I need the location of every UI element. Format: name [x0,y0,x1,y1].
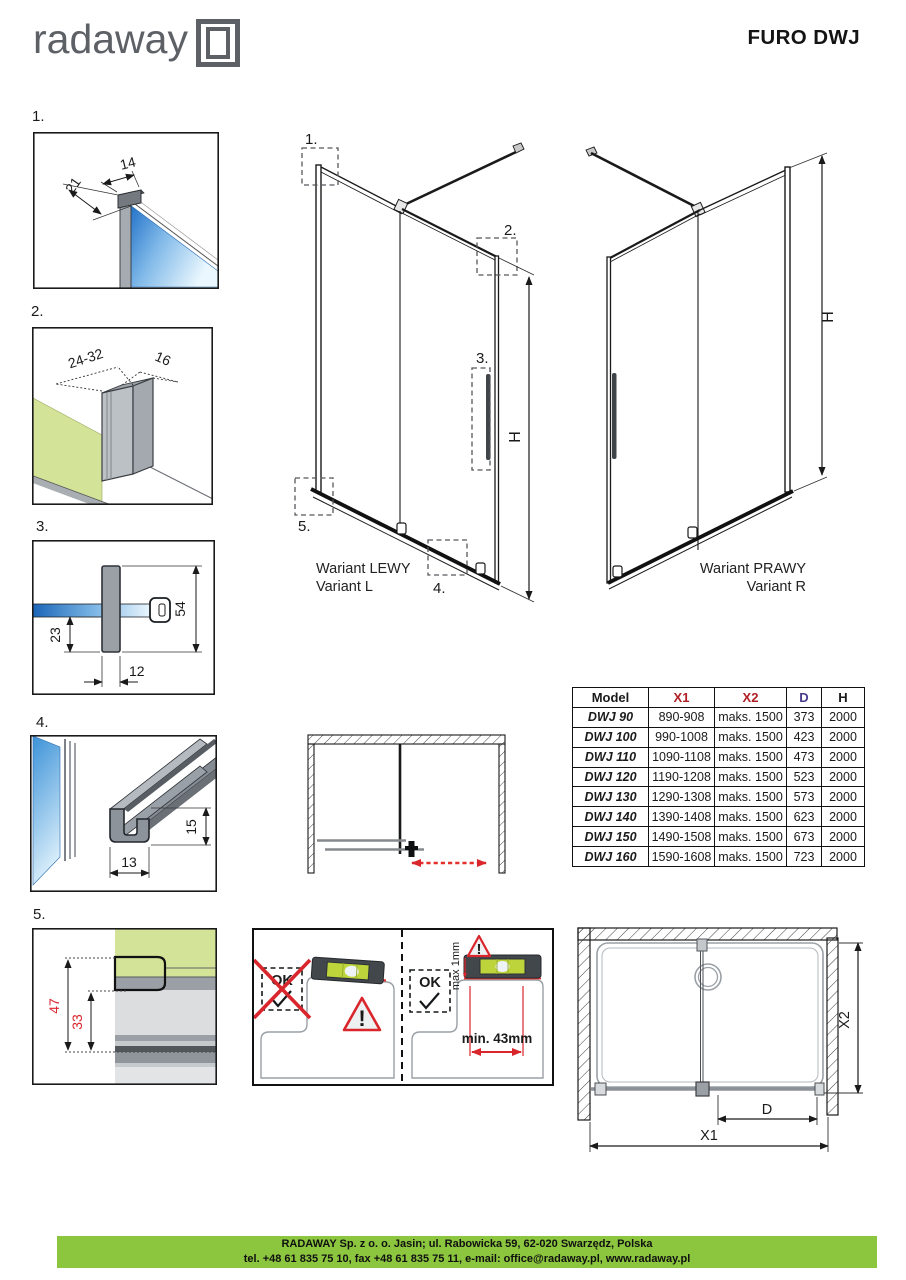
glass-panel [33,604,152,617]
footer-bar: RADAWAY Sp. z o. o. Jasin; ul. Rabowicka… [57,1236,877,1268]
front-edge-profile [607,257,611,583]
table-cell-x2: maks. 1500 [715,747,787,767]
footer-contact: tel. +48 61 835 75 10, fax +48 61 835 75… [244,1252,691,1267]
table-cell-x2: maks. 1500 [715,767,787,787]
col-header-model: Model [573,688,649,708]
dim-X2: X2 [837,1011,853,1029]
table-row: DWJ 100990-1008maks. 15004232000 [573,727,865,747]
table-cell-h: 2000 [822,847,865,867]
correct-example: OK max 1mm ! min. 43mm [410,936,543,1078]
variant-left-drawing: 1. 2. 3. 4. 5. H [280,125,545,605]
table-cell-model: DWJ 140 [573,807,649,827]
detail-3-handle-diagram: 54 23 12 [32,540,215,695]
glass-panel [130,205,218,287]
brand-square-icon [196,19,240,67]
dim-H-right: H [820,311,837,323]
leveling-instructions: OK ! OK max 1mm ! [252,928,554,1086]
sliding-schematic [300,728,515,880]
glass-panel [33,736,60,885]
dim-D: D [762,1102,772,1118]
page-title: FURO DWJ [747,26,860,50]
table-cell-model: DWJ 120 [573,767,649,787]
col-header-x1: X1 [649,688,715,708]
table-cell-x1: 1390-1408 [649,807,715,827]
variant-right-drawing: H [585,130,885,610]
detail-1-number: 1. [32,108,45,125]
wrong-example: OK ! [254,957,394,1078]
table-cell-model: DWJ 110 [573,747,649,767]
table-cell-model: DWJ 130 [573,787,649,807]
detail-4-bottom-rail-diagram: 15 13 [30,735,217,892]
table-cell-x2: maks. 1500 [715,827,787,847]
table-cell-h: 2000 [822,727,865,747]
dimensions-table: Model X1 X2 D H DWJ 90890-908maks. 15003… [572,687,865,867]
footer-address: RADAWAY Sp. z o. o. Jasin; ul. Rabowicka… [281,1237,652,1252]
table-cell-model: DWJ 90 [573,707,649,727]
table-cell-x1: 1590-1608 [649,847,715,867]
detail-2-wall-profile-diagram: 24-32 16 [32,327,213,505]
table-cell-x2: maks. 1500 [715,787,787,807]
table-cell-d: 423 [787,727,822,747]
table-cell-x2: maks. 1500 [715,807,787,827]
detail-1-wall-profile-diagram: 14 21 [33,132,219,289]
variant-left-label: Wariant LEWY Variant L [316,560,496,596]
table-cell-x1: 990-1008 [649,727,715,747]
table-cell-d: 523 [787,767,822,787]
table-cell-x1: 1490-1508 [649,827,715,847]
door-handle [612,373,617,459]
rail-profile [110,739,217,842]
table-cell-x2: maks. 1500 [715,707,787,727]
dim-24-32: 24-32 [66,345,105,371]
wall-profile [120,198,131,288]
table-cell-model: DWJ 160 [573,847,649,867]
section-layers [115,929,216,1084]
roller [613,566,622,577]
table-cell-h: 2000 [822,747,865,767]
col-header-x2: X2 [715,688,787,708]
callout-2: 2. [504,222,517,239]
min-distance-label: min. 43mm [462,1031,533,1046]
ok-label: OK [419,975,441,991]
table-row: DWJ 1401390-1408maks. 15006232000 [573,807,865,827]
spirit-level-flat [464,955,541,978]
datasheet-page: radaway FURO DWJ 1. 2. 3. 4. 5. 14 21 [0,0,906,1280]
dim-13: 13 [121,854,137,870]
support-bar [591,153,698,208]
detail-5-threshold-diagram: 47 33 [32,928,217,1085]
table-cell-d: 673 [787,827,822,847]
callout-3: 3. [476,350,489,367]
detail-2-number: 2. [31,303,44,320]
roller [688,527,697,538]
support-bar [404,152,516,205]
spirit-level-tilted [311,957,384,984]
max-gap-label: max 1mm [450,942,462,990]
table-row: DWJ 90890-908maks. 15003732000 [573,707,865,727]
detail-3-number: 3. [36,518,49,535]
dim-12: 12 [129,663,145,679]
col-header-d: D [787,688,822,708]
roller [397,523,406,534]
top-bracket [697,939,707,951]
table-row: DWJ 1301290-1308maks. 15005732000 [573,787,865,807]
dim-23: 23 [47,627,63,643]
wall-profile [785,167,790,492]
table-row: DWJ 1501490-1508maks. 15006732000 [573,827,865,847]
table-row: DWJ 1201190-1208maks. 15005232000 [573,767,865,787]
variant-right-label: Wariant PRAWY Variant R [650,560,806,596]
table-cell-x1: 1090-1108 [649,747,715,767]
table-header-row: Model X1 X2 D H [573,688,865,708]
callout-1: 1. [305,131,318,148]
table-cell-x1: 1190-1208 [649,767,715,787]
table-cell-h: 2000 [822,787,865,807]
dim-X1: X1 [700,1128,718,1144]
svg-text:!: ! [358,1006,365,1031]
handle-bar [102,566,120,652]
detail-4-number: 4. [36,714,49,731]
table-cell-h: 2000 [822,707,865,727]
table-cell-h: 2000 [822,807,865,827]
front-edge-profile [495,256,499,583]
table-cell-d: 723 [787,847,822,867]
detail-5-number: 5. [33,906,46,923]
table-cell-h: 2000 [822,767,865,787]
niche-walls [308,735,505,873]
table-cell-model: DWJ 100 [573,727,649,747]
dim-54: 54 [172,601,188,617]
wall-profile [316,165,321,492]
dim-14: 14 [118,153,137,172]
table-cell-x1: 890-908 [649,707,715,727]
col-header-h: H [822,688,865,708]
brand-wordmark: radaway [33,16,188,62]
table-cell-model: DWJ 150 [573,827,649,847]
table-cell-x2: maks. 1500 [715,727,787,747]
radaway-logo: radaway [33,16,240,67]
table-cell-d: 473 [787,747,822,767]
table-row: DWJ 1601590-1608maks. 15007232000 [573,847,865,867]
table-cell-h: 2000 [822,827,865,847]
dim-21: 21 [62,174,84,196]
dim-16: 16 [153,348,174,369]
table-cell-d: 373 [787,707,822,727]
dim-H-left: H [507,431,524,443]
plan-view-diagram: X2 D X1 [575,925,906,1160]
table-cell-x2: maks. 1500 [715,847,787,867]
table-row: DWJ 1101090-1108maks. 15004732000 [573,747,865,767]
callout-5: 5. [298,518,311,535]
table-cell-d: 573 [787,787,822,807]
dim-15: 15 [183,819,199,835]
svg-text:!: ! [477,941,482,958]
profile-side-face [133,378,153,474]
dim-33: 33 [69,1014,85,1030]
dim-47: 47 [46,998,62,1014]
table-cell-x1: 1290-1308 [649,787,715,807]
table-cell-d: 623 [787,807,822,827]
